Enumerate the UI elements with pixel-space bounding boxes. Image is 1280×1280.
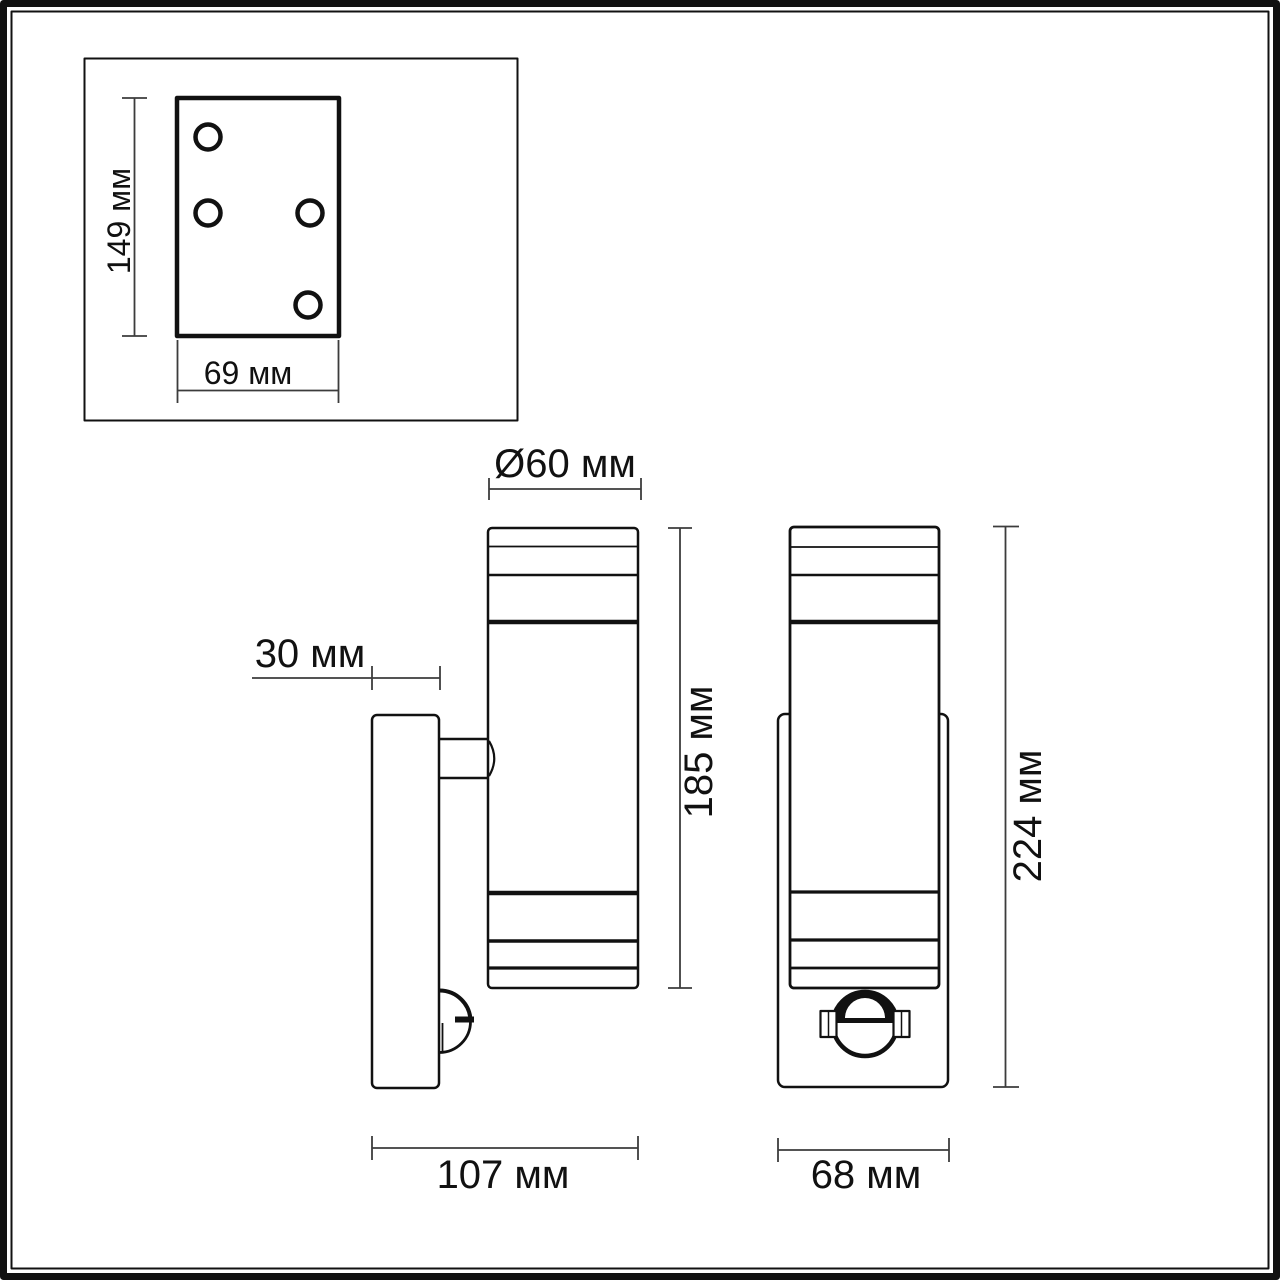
diameter-dimension: Ø60 мм — [489, 442, 641, 500]
outer-frame-border — [4, 4, 1277, 1277]
front-cylinder-body — [790, 527, 939, 988]
front-view: 224 мм 68 мм — [778, 527, 1050, 1198]
dimension-drawing-page: 149 мм 69 мм Ø60 мм — [0, 0, 1280, 1280]
mounting-plate-outline — [177, 98, 339, 336]
plate-depth-label: 30 мм — [255, 632, 366, 676]
body-height-label: 185 мм — [677, 686, 721, 819]
total-depth-dimension: 107 мм — [372, 1136, 638, 1197]
mounting-hole — [298, 201, 323, 226]
plate-depth-dimension: 30 мм — [252, 632, 440, 690]
plate-height-dimension: 149 мм — [101, 98, 147, 336]
mounting-hole — [196, 201, 221, 226]
side-wall-plate — [372, 715, 439, 1088]
front-motion-sensor — [821, 992, 910, 1056]
sensor-lower-arc — [440, 1022, 471, 1053]
total-height-label: 224 мм — [1006, 750, 1050, 883]
total-height-dimension: 224 мм — [993, 527, 1050, 1088]
total-depth-label: 107 мм — [437, 1153, 570, 1197]
side-cylinder-body — [488, 528, 638, 988]
front-width-label: 68 мм — [811, 1153, 922, 1197]
side-view: Ø60 мм 30 мм 185 мм 107 мм — [252, 442, 721, 1197]
plate-width-label: 69 мм — [204, 355, 292, 391]
mounting-hole — [296, 293, 321, 318]
plate-width-dimension: 69 мм — [177, 340, 339, 403]
inset-panel-border — [85, 59, 518, 421]
inner-frame-border — [12, 12, 1269, 1269]
plate-height-label: 149 мм — [101, 168, 137, 274]
mounting-hole — [196, 125, 221, 150]
front-width-dimension: 68 мм — [778, 1138, 949, 1197]
diameter-label: Ø60 мм — [494, 442, 636, 486]
side-motion-sensor — [440, 991, 475, 1053]
sensor-dome — [834, 992, 897, 1018]
technical-drawing: 149 мм 69 мм Ø60 мм — [0, 0, 1280, 1280]
page-frame — [4, 4, 1277, 1277]
mounting-plate-view: 149 мм 69 мм — [85, 59, 518, 421]
body-height-dimension: 185 мм — [668, 528, 721, 988]
